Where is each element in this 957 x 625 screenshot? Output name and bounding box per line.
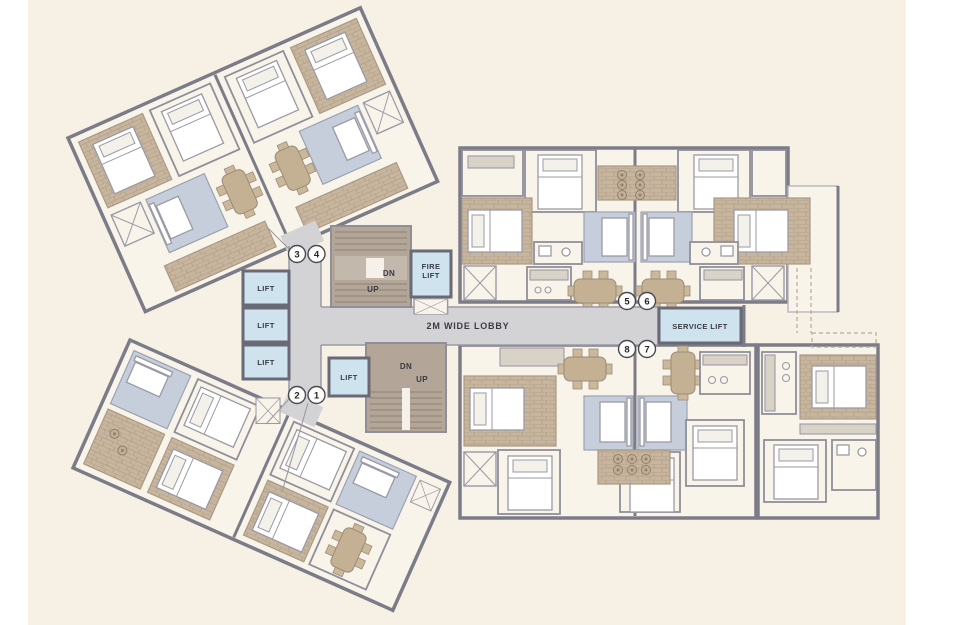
unit-marker-4: 4 bbox=[308, 246, 325, 263]
service-shaft bbox=[752, 266, 784, 300]
counter bbox=[468, 156, 514, 168]
sink-icon bbox=[702, 248, 710, 256]
stair-up-label: UP bbox=[416, 375, 428, 384]
planter-icon bbox=[628, 455, 637, 464]
counter bbox=[530, 270, 568, 280]
bed-icon bbox=[508, 456, 552, 510]
lift-2-label: LIFT bbox=[257, 321, 274, 330]
unit-marker-1: 1 bbox=[308, 387, 325, 404]
bathroom-shaft bbox=[464, 452, 496, 486]
planter-icon bbox=[642, 455, 651, 464]
svg-text:1: 1 bbox=[314, 391, 320, 402]
counter bbox=[704, 270, 742, 280]
lift-4-label: LIFT bbox=[340, 373, 357, 382]
sofa-icon bbox=[646, 402, 671, 442]
sofa-icon bbox=[640, 398, 644, 446]
lift-3-label: LIFT bbox=[257, 358, 274, 367]
planter-icon bbox=[618, 181, 627, 190]
svg-text:2: 2 bbox=[294, 391, 299, 402]
sofa-icon bbox=[600, 402, 625, 442]
bed-icon bbox=[734, 210, 788, 252]
fire-lift-label-line1: FIRE bbox=[422, 262, 441, 271]
planter-icon bbox=[628, 466, 637, 475]
sink-icon bbox=[562, 248, 570, 256]
stair-dn-label: DN bbox=[400, 362, 412, 371]
sink-icon bbox=[858, 448, 866, 456]
counter bbox=[765, 355, 775, 411]
planter-icon bbox=[636, 171, 645, 180]
planter-icon bbox=[614, 455, 623, 464]
block-top-right bbox=[460, 148, 838, 312]
unit-marker-5: 5 bbox=[619, 293, 636, 310]
unit-marker-7: 7 bbox=[639, 341, 656, 358]
floor-plan: 2M WIDE LOBBY LIFT LIFT LIFT DN UP FIRE … bbox=[0, 0, 957, 625]
unit-marker-2: 2 bbox=[289, 387, 306, 404]
svg-text:3: 3 bbox=[294, 250, 299, 261]
svg-text:8: 8 bbox=[624, 345, 629, 356]
unit-marker-8: 8 bbox=[619, 341, 636, 358]
toilet-icon bbox=[721, 246, 733, 256]
bed-icon bbox=[812, 366, 866, 408]
sofa-icon bbox=[602, 218, 627, 256]
planter-icon bbox=[636, 191, 645, 200]
sofa-icon bbox=[649, 218, 674, 256]
planter-icon bbox=[642, 466, 651, 475]
fire-lift-label-line2: LIFT bbox=[422, 271, 439, 280]
service-shaft bbox=[414, 299, 448, 314]
bed-icon bbox=[468, 210, 522, 252]
bed-icon bbox=[693, 426, 737, 480]
stair-landing bbox=[366, 258, 384, 278]
svg-text:6: 6 bbox=[644, 297, 649, 308]
toilet-icon bbox=[837, 445, 849, 455]
wardrobe bbox=[800, 424, 876, 434]
stair-up-label: UP bbox=[367, 285, 379, 294]
svg-text:5: 5 bbox=[624, 297, 630, 308]
bed-icon bbox=[538, 155, 582, 209]
unit-marker-3: 3 bbox=[289, 246, 306, 263]
toilet-icon bbox=[539, 246, 551, 256]
planter-icon bbox=[618, 191, 627, 200]
stair-landing bbox=[402, 388, 410, 430]
utility-room bbox=[752, 150, 786, 196]
planter-icon bbox=[618, 171, 627, 180]
svg-text:7: 7 bbox=[644, 345, 649, 356]
stair-dn-label: DN bbox=[383, 269, 395, 278]
service-shaft bbox=[256, 398, 280, 424]
unit-marker-6: 6 bbox=[639, 293, 656, 310]
lobby-label: 2M WIDE LOBBY bbox=[427, 321, 510, 331]
sofa-icon bbox=[629, 214, 633, 260]
bed-icon bbox=[774, 445, 818, 499]
floor-plan-canvas: 2M WIDE LOBBY LIFT LIFT LIFT DN UP FIRE … bbox=[0, 0, 957, 625]
planter-icon bbox=[636, 181, 645, 190]
sofa-icon bbox=[627, 398, 631, 446]
svg-text:4: 4 bbox=[314, 250, 320, 261]
service-shaft bbox=[464, 266, 496, 300]
counter bbox=[703, 355, 747, 365]
planter-icon bbox=[614, 466, 623, 475]
service-lift-label: SERVICE LIFT bbox=[672, 322, 728, 331]
kitchen-counter bbox=[500, 348, 564, 366]
bed-icon bbox=[470, 388, 524, 430]
sofa-icon bbox=[643, 214, 647, 260]
lift-1-label: LIFT bbox=[257, 284, 274, 293]
